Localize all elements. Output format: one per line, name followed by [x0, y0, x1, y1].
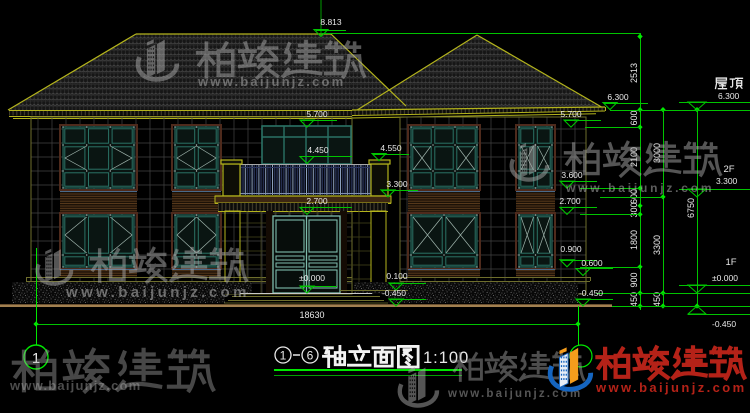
- svg-text:6750: 6750: [686, 198, 696, 218]
- svg-text:0.600: 0.600: [581, 258, 603, 268]
- svg-text:www.baijunjz.com: www.baijunjz.com: [65, 284, 250, 301]
- svg-text:450: 450: [629, 292, 639, 307]
- svg-text:3.300: 3.300: [386, 179, 408, 189]
- svg-text:1800: 1800: [629, 230, 639, 250]
- svg-text:1F: 1F: [725, 257, 736, 268]
- svg-text:6.300: 6.300: [718, 91, 740, 101]
- svg-text:0.100: 0.100: [386, 271, 408, 281]
- svg-text:-0.450: -0.450: [712, 319, 736, 329]
- svg-text:±0.000: ±0.000: [299, 273, 325, 283]
- svg-text:450: 450: [652, 292, 662, 307]
- svg-text:3300: 3300: [652, 235, 662, 255]
- svg-text:300: 300: [629, 202, 639, 217]
- svg-text:6: 6: [307, 349, 314, 363]
- svg-text:0.900: 0.900: [560, 244, 582, 254]
- svg-text:www.baijunjz.com: www.baijunjz.com: [595, 380, 747, 395]
- svg-text:www.baijunjz.com: www.baijunjz.com: [9, 378, 141, 393]
- svg-text:8.813: 8.813: [320, 17, 342, 27]
- svg-text:600: 600: [629, 110, 639, 125]
- svg-text:4.450: 4.450: [307, 145, 329, 155]
- svg-text:6.300: 6.300: [607, 92, 629, 102]
- svg-text:www.baijunjz.com: www.baijunjz.com: [565, 181, 714, 195]
- svg-text:www.baijunjz.com: www.baijunjz.com: [197, 74, 345, 89]
- svg-text:3.300: 3.300: [716, 176, 738, 186]
- svg-text:2513: 2513: [629, 63, 639, 83]
- svg-text:-0.450: -0.450: [382, 288, 406, 298]
- svg-text:2.700: 2.700: [559, 196, 581, 206]
- svg-text:5.700: 5.700: [306, 109, 328, 119]
- svg-text:5.700: 5.700: [560, 109, 582, 119]
- svg-text:2.700: 2.700: [306, 196, 328, 206]
- svg-text:900: 900: [629, 272, 639, 287]
- svg-text:1: 1: [280, 349, 287, 363]
- svg-text:±0.000: ±0.000: [712, 273, 738, 283]
- svg-text:-0.450: -0.450: [579, 288, 603, 298]
- svg-text:4.550: 4.550: [380, 143, 402, 153]
- svg-text:18630: 18630: [299, 310, 324, 320]
- svg-text:2F: 2F: [723, 164, 734, 175]
